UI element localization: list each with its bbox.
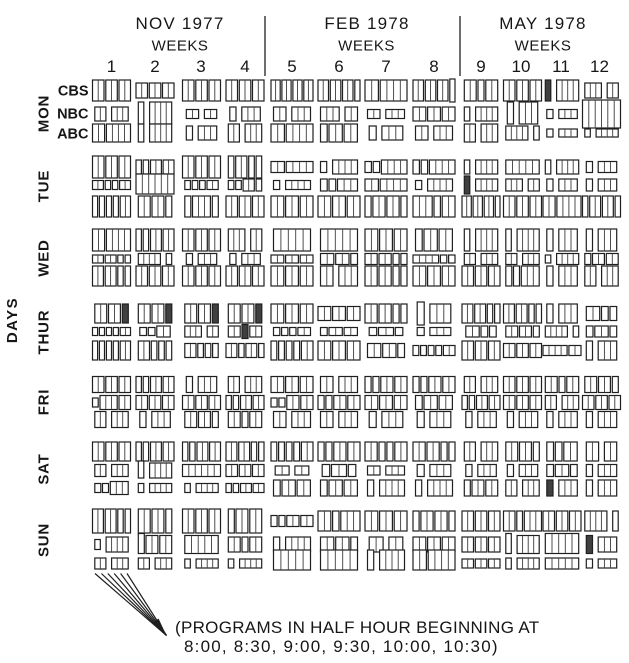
svg-text:11: 11 [552, 57, 570, 76]
svg-text:WEEKS: WEEKS [152, 38, 209, 55]
svg-text:10: 10 [512, 57, 531, 76]
svg-text:WEEKS: WEEKS [338, 38, 395, 55]
svg-text:MON: MON [36, 95, 53, 132]
svg-text:DAYS: DAYS [4, 297, 21, 343]
svg-text:ABC: ABC [57, 127, 89, 143]
svg-text:5: 5 [287, 57, 296, 76]
svg-text:NOV 1977: NOV 1977 [136, 14, 225, 33]
svg-text:9: 9 [476, 57, 485, 76]
svg-text:2: 2 [150, 57, 159, 76]
svg-text:1: 1 [107, 57, 116, 76]
svg-text:CBS: CBS [58, 84, 89, 100]
svg-text:12: 12 [590, 57, 609, 76]
svg-text:WEEKS: WEEKS [515, 38, 572, 55]
svg-text:8: 8 [429, 57, 438, 76]
svg-text:FRI: FRI [36, 389, 53, 416]
svg-text:WED: WED [36, 239, 53, 276]
svg-text:SAT: SAT [36, 453, 53, 484]
svg-text:6: 6 [334, 57, 343, 76]
svg-text:SUN: SUN [36, 523, 53, 557]
svg-text:(PROGRAMS IN HALF HOUR BEGINNI: (PROGRAMS IN HALF HOUR BEGINNING AT [175, 618, 539, 637]
svg-text:MAY 1978: MAY 1978 [499, 14, 586, 33]
svg-text:8:00, 8:30, 9:00, 9:30, 10:00,: 8:00, 8:30, 9:00, 9:30, 10:00, 10:30) [184, 637, 499, 656]
svg-text:TUE: TUE [36, 170, 53, 202]
svg-text:3: 3 [196, 57, 205, 76]
svg-text:FEB 1978: FEB 1978 [324, 14, 409, 33]
svg-text:4: 4 [240, 57, 249, 76]
svg-text:7: 7 [381, 57, 390, 76]
svg-text:NBC: NBC [57, 107, 89, 123]
svg-text:THUR: THUR [36, 310, 53, 355]
